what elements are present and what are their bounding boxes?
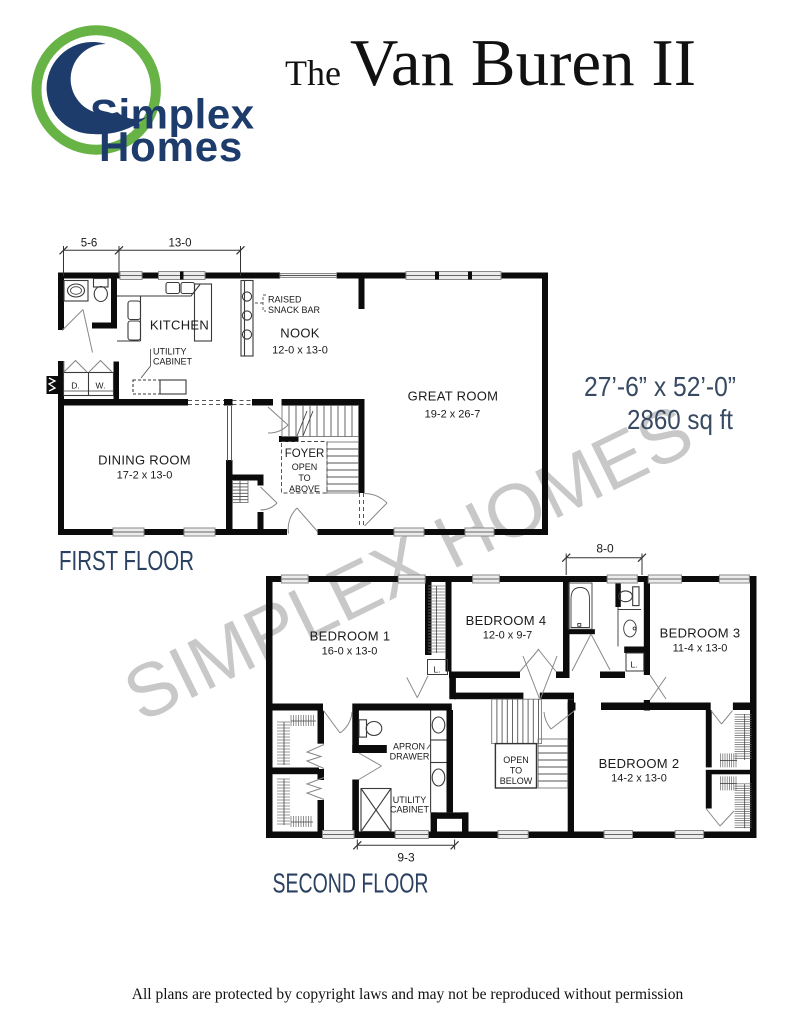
svg-text:17-2 x 13-0: 17-2 x 13-0 [117,470,173,482]
svg-text:D.: D. [71,381,80,391]
svg-text:14-2 x 13-0: 14-2 x 13-0 [611,773,667,785]
svg-text:13-0: 13-0 [168,238,191,250]
svg-text:GREAT ROOM: GREAT ROOM [408,389,499,404]
svg-text:KITCHEN: KITCHEN [150,318,209,333]
svg-text:CABINET: CABINET [390,805,430,815]
svg-text:OPEN: OPEN [503,755,529,765]
svg-text:TO: TO [298,473,310,483]
svg-text:NOOK: NOOK [280,326,320,341]
svg-text:OPEN: OPEN [292,462,318,472]
svg-text:UTILITY: UTILITY [153,347,187,357]
svg-text:19-2 x 26-7: 19-2 x 26-7 [425,409,481,421]
svg-text:CABINET: CABINET [153,357,193,367]
svg-text:APRON: APRON [393,742,425,752]
svg-text:FIRST FLOOR: FIRST FLOOR [59,545,194,576]
svg-text:9-3: 9-3 [397,851,415,865]
svg-text:UTILITY: UTILITY [393,795,427,805]
svg-text:TO: TO [510,766,522,776]
svg-text:BEDROOM 4: BEDROOM 4 [466,613,547,628]
svg-text:BELOW: BELOW [500,776,533,786]
svg-text:16-0 x 13-0: 16-0 x 13-0 [322,646,378,658]
svg-text:L.: L. [433,665,440,675]
svg-text:27’-6” x 52’-0”: 27’-6” x 52’-0” [584,371,736,402]
svg-text:12-0 x 9-7: 12-0 x 9-7 [483,630,533,642]
svg-text:BEDROOM 2: BEDROOM 2 [599,756,680,771]
svg-text:11-4 x 13-0: 11-4 x 13-0 [673,643,728,655]
svg-text:SECOND FLOOR: SECOND FLOOR [273,868,429,899]
svg-text:8-0: 8-0 [596,542,614,556]
svg-text:SNACK BAR: SNACK BAR [268,305,321,315]
svg-text:SIMPLEX HOMES: SIMPLEX HOMES [111,388,705,738]
svg-text:W.: W. [96,381,106,391]
svg-text:BEDROOM 1: BEDROOM 1 [310,629,391,644]
svg-text:2860 sq ft: 2860 sq ft [627,404,733,435]
svg-text:5-6: 5-6 [81,238,98,250]
svg-text:12-0 x 13-0: 12-0 x 13-0 [272,345,328,357]
svg-text:DRAWER: DRAWER [390,752,430,762]
svg-text:DINING ROOM: DINING ROOM [98,453,191,468]
svg-text:FOYER: FOYER [285,448,325,460]
svg-text:ABOVE: ABOVE [289,484,320,494]
svg-text:L.: L. [630,660,637,670]
svg-text:RAISED: RAISED [268,295,302,305]
svg-text:BEDROOM 3: BEDROOM 3 [660,626,741,641]
